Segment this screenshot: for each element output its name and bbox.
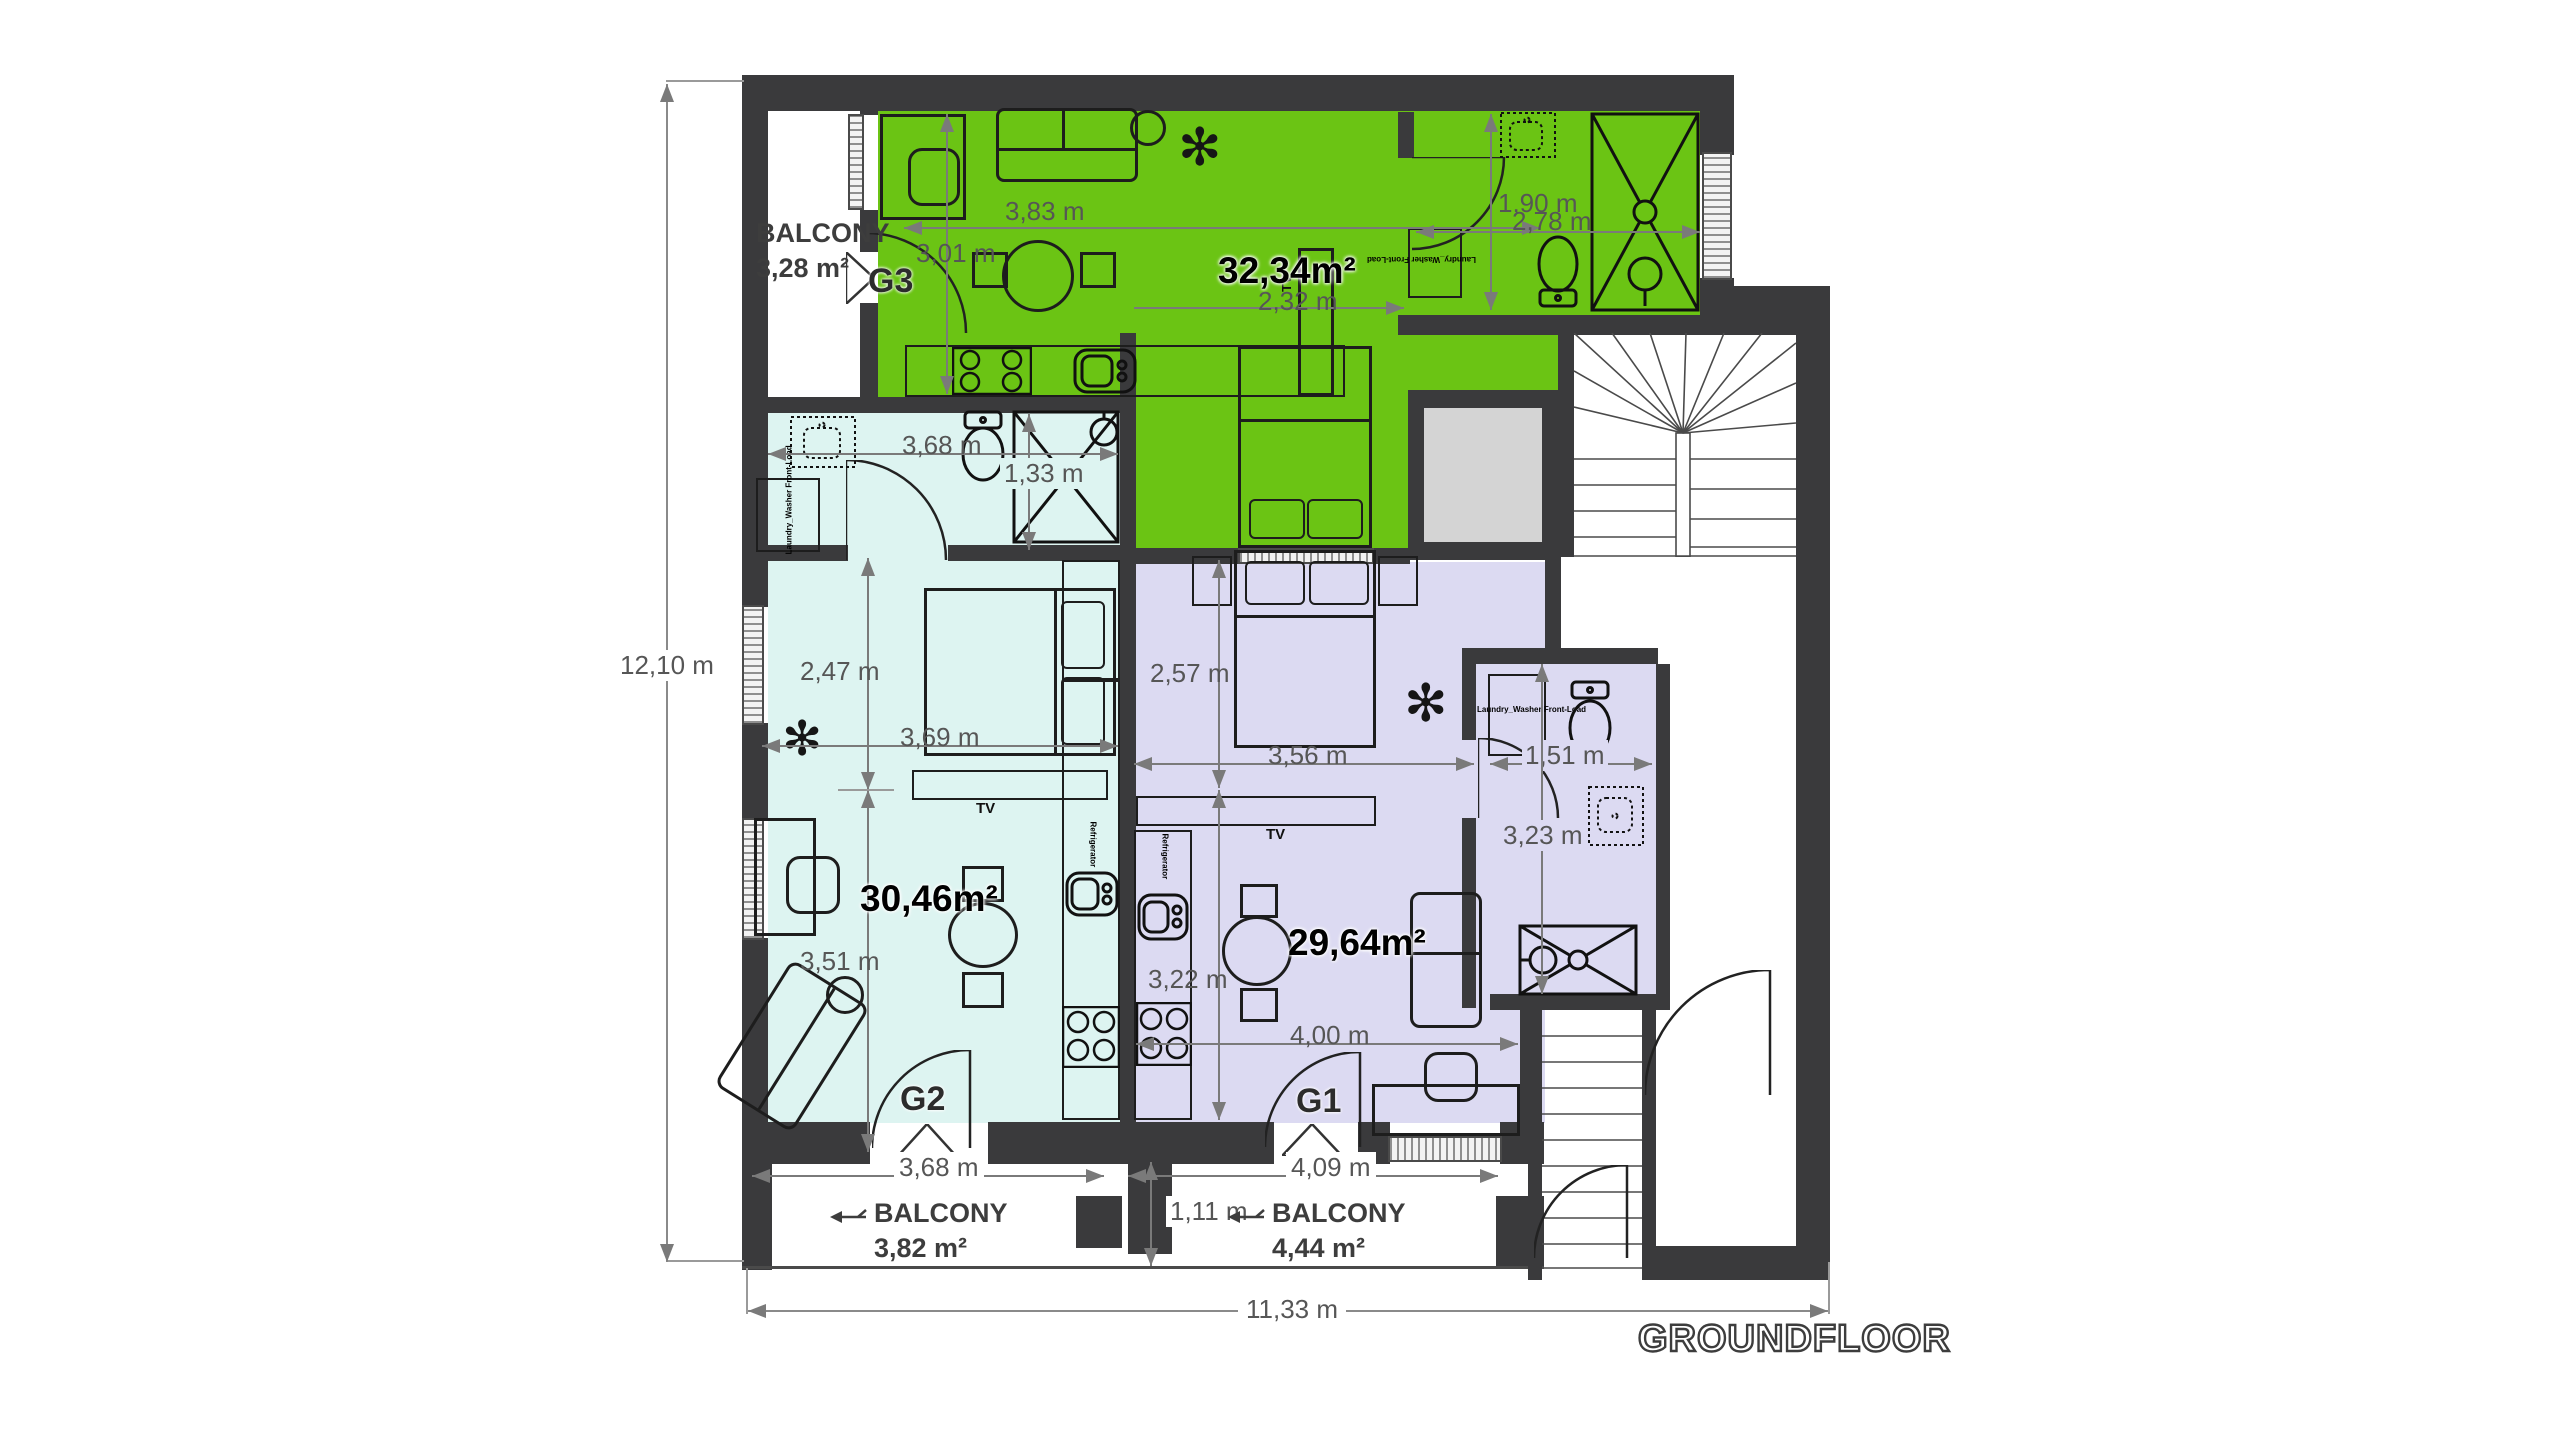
chair-g3-desk [908,148,960,206]
plant-icon-g1: ✻ [1404,678,1448,730]
dim-g2-bed-height: 2,47 m [800,656,880,687]
arrow-icon [1212,790,1226,808]
dim-balcony-g2-width: 3,68 m [894,1152,984,1183]
door-arc-g2-bath [846,460,948,562]
arrow-icon [1144,1248,1158,1266]
chair-g1-bottom [1240,988,1278,1022]
sink-icon-g2-bath [790,416,856,468]
window-g1-bottom [1388,1136,1502,1162]
arrow-icon [1535,664,1549,682]
bed-g3 [1238,346,1372,548]
kitchen-sink-icon-g2 [1064,870,1120,918]
side-table-g2 [826,976,864,1014]
stove-icon-g2 [1062,1006,1120,1068]
washer-label-g3: Laundry_Washer Front-Load [1396,254,1476,263]
arrow-icon [768,447,786,461]
apartment-id-g1: G1 [1296,1082,1341,1121]
dim-g3-bath-width: 2,78 m [1512,206,1592,237]
tv-label-g2: TV [976,800,995,817]
sofa-g3 [996,108,1138,182]
toilet-icon-g3 [1536,234,1580,308]
arrow-icon [940,114,954,132]
arrow-icon [1144,1162,1158,1180]
chair-g1-desk [1424,1052,1478,1102]
door-arc-lower-stairs [1534,1165,1629,1260]
balcony-g2-label: BALCONY 3,82 m² [874,1196,1008,1266]
sideboard-g1 [1136,796,1376,826]
arrow-icon [1490,757,1508,771]
dim-line [904,227,1540,229]
pillar-balcony-mid1 [1076,1196,1122,1248]
wall-top [742,75,1734,111]
stove-icon-g3 [952,347,1032,395]
balcony-top-name: BALCONY [756,216,890,251]
chair-g2-bottom [962,972,1004,1008]
tv-label-g1: TV [1266,826,1285,843]
dim-balcony-g1-width: 4,09 m [1286,1152,1376,1183]
balcony-g1-name: BALCONY [1272,1196,1406,1231]
dim-g1-bath-width: 1,51 m [1522,740,1608,771]
balcony-g2-name: BALCONY [874,1196,1008,1231]
floorplan-canvas: ✻ TV Laundry_Washer Front-Load Laundry_W… [0,0,2560,1442]
plant-icon-g3: ✻ [1178,122,1222,174]
dim-line [1218,790,1220,1120]
swing-arrow-icon-g1 [1226,1206,1266,1228]
arrow-icon [752,1169,770,1183]
fridge-label-g1: Refrigerator [1160,816,1169,896]
wall-shaft-right [1542,408,1558,542]
arrow-icon [1535,976,1549,994]
side-table-g3 [1130,110,1166,146]
wall-g1bath-left-a [1462,664,1476,740]
arrow-icon [1810,1304,1828,1318]
dim-g1-living-height: 3,22 m [1148,964,1228,995]
arrow-icon [1484,114,1498,132]
arrow-icon [1386,301,1404,315]
kitchen-sink-icon-g3 [1072,347,1138,395]
stairs-upper [1574,333,1796,557]
table-g1 [1222,916,1292,986]
arrow-icon [1100,739,1118,753]
chair-g2-desk [786,856,840,914]
chair-g3-dining-right [1080,252,1116,288]
balcony-g2-area: 3,82 m² [874,1231,1008,1266]
wall-g1bath-top [1462,648,1658,664]
washer-label-g1: Laundry_Washer Front-Load [1477,706,1561,715]
wall-g3bath-bottom [1398,315,1798,335]
apartment-area-g3: 32,34m² [1218,250,1356,292]
wall-g1bath-bottom [1490,994,1670,1010]
wall-g1-right-upper [1545,548,1561,664]
arrow-icon [748,1304,766,1318]
balcony-g1-label: BALCONY 4,44 m² [1272,1196,1406,1266]
arrow-icon [1212,560,1226,578]
arrow-icon [1212,1102,1226,1120]
dim-total-width: 11,33 m [1238,1294,1346,1325]
arrow-icon [1634,757,1652,771]
ext-line [666,80,744,82]
arrow-icon [1022,414,1036,432]
ext-line [1828,1262,1830,1314]
dim-g2-bath-width: 3,68 m [902,430,982,461]
wall-stair-left-upper [1558,333,1574,557]
ext-line [666,1260,744,1262]
dim-g2-living-height: 3,51 m [800,946,880,977]
apartment-id-g2: G2 [900,1080,945,1119]
apartment-area-g2: 30,46m² [860,878,998,920]
wall-g2bath-bottom-b [948,545,1134,561]
dim-g1-bath-height: 3,23 m [1500,820,1586,851]
dim-line [1490,114,1492,310]
window-g3-bath [1702,152,1732,280]
apartment-area-g1: 29,64m² [1288,922,1426,964]
kitchen-sink-icon-g1 [1136,892,1190,942]
arrow-icon [1416,225,1434,239]
arrow-icon [861,790,875,808]
cabinet-g2 [1062,560,1120,680]
stove-icon-g1 [1136,1002,1192,1066]
arrow-icon [1500,1037,1518,1051]
table-g3-dining [1002,240,1074,312]
door-arc-entrance [1645,970,1772,1097]
sink-icon-g1-bath [1588,786,1644,846]
arrow-icon [904,221,922,235]
dim-g1-bed-width: 3,56 m [1268,740,1348,771]
sink-icon-g3-bath [1500,112,1556,158]
arrow-icon [861,772,875,790]
arrow-icon [762,739,780,753]
dim-total-height: 12,10 m [612,650,722,681]
arrow-icon [1022,532,1036,550]
arrow-icon [1456,757,1474,771]
bed-g1 [1234,550,1376,748]
arrow-icon [1484,292,1498,310]
wall-bottom-1 [742,1122,870,1164]
dim-g1-living-width: 4,00 m [1290,1020,1370,1051]
washer-g2: Laundry_Washer Front-Load [756,478,820,552]
dim-g2-living-width: 3,69 m [900,722,980,753]
window-g3-balcony [848,114,864,210]
arrow-icon [1212,770,1226,788]
wall-g1bath-right [1656,664,1670,1008]
dim-g3-living-width: 3,83 m [1005,196,1085,227]
wall-right-upper [1700,75,1734,155]
dim-g2-bath-height: 1,33 m [1000,458,1088,489]
arrow-icon [1134,757,1152,771]
wall-shaft-bottom [1408,542,1558,560]
wall-shaft-left [1408,408,1424,542]
page-title: GROUNDFLOOR [1638,1318,1951,1361]
wall-corridor-bottom [1642,1246,1830,1280]
wall-shaft-top [1408,390,1558,408]
arrow-icon [1682,225,1700,239]
wall-balcony-g3-a [860,75,878,115]
arrow-icon [1086,1169,1104,1183]
arrow-icon [861,1134,875,1152]
arrow-icon [1136,1037,1154,1051]
wall-g3bath-left-stub [1398,112,1414,158]
swing-arrow-icon-g2 [828,1206,868,1228]
balcony-g1-area: 4,44 m² [1272,1231,1406,1266]
balcony-front-edge [742,1266,1544,1269]
chair-g1-top [1240,884,1278,918]
washer-label-g2: Laundry_Washer Front-Load [786,470,795,554]
dim-g3-living-height: 3,01 m [916,238,996,269]
wall-bottom-2 [988,1122,1274,1164]
wall-left-2 [742,723,768,820]
wall-right-main [1796,286,1830,1280]
window-g2-left-upper [742,605,764,725]
shaft [1424,408,1542,542]
plant-icon-g2: ✻ [782,716,822,764]
arrow-icon [861,558,875,576]
arrow-icon [660,1244,674,1262]
shower-icon-g3 [1590,112,1700,312]
arrow-icon [940,376,954,394]
apartment-id-g3: G3 [868,262,913,301]
arrow-icon [660,84,674,102]
nightstand-g1-right [1378,556,1418,606]
arrow-icon [1100,447,1118,461]
arrow-icon [1480,1169,1498,1183]
dim-g1-bed-height: 2,57 m [1150,658,1230,689]
